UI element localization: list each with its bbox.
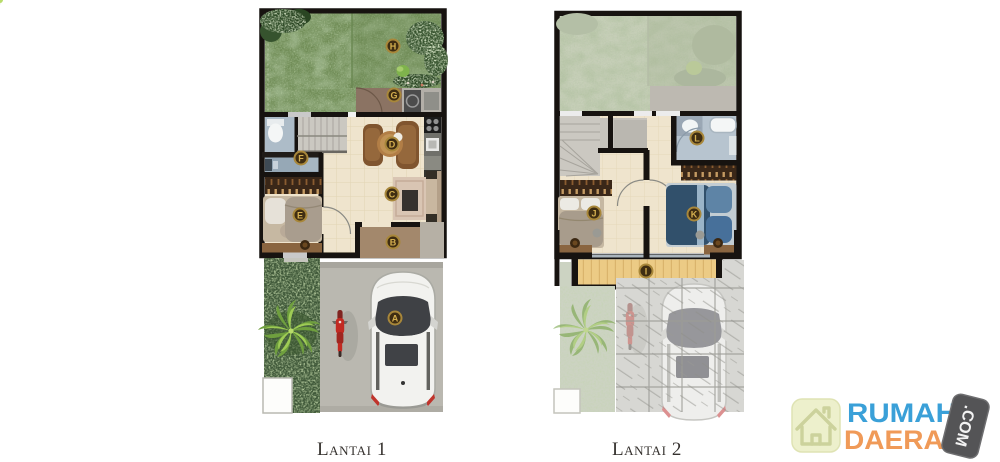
svg-text:J: J — [591, 208, 596, 218]
svg-text:C: C — [389, 189, 396, 199]
svg-text:H: H — [390, 41, 397, 51]
svg-text:I: I — [645, 266, 648, 276]
svg-text:E: E — [297, 210, 303, 220]
svg-text:Lantai 1: Lantai 1 — [317, 439, 387, 460]
svg-text:L: L — [694, 133, 700, 143]
svg-text:Lantai 2: Lantai 2 — [612, 439, 682, 460]
svg-text:B: B — [390, 237, 397, 247]
svg-text:G: G — [390, 90, 397, 100]
svg-text:RUMAH: RUMAH — [847, 398, 957, 428]
svg-text:K: K — [691, 209, 698, 219]
svg-text:F: F — [298, 153, 304, 163]
svg-text:A: A — [392, 313, 399, 323]
svg-text:D: D — [389, 139, 396, 149]
